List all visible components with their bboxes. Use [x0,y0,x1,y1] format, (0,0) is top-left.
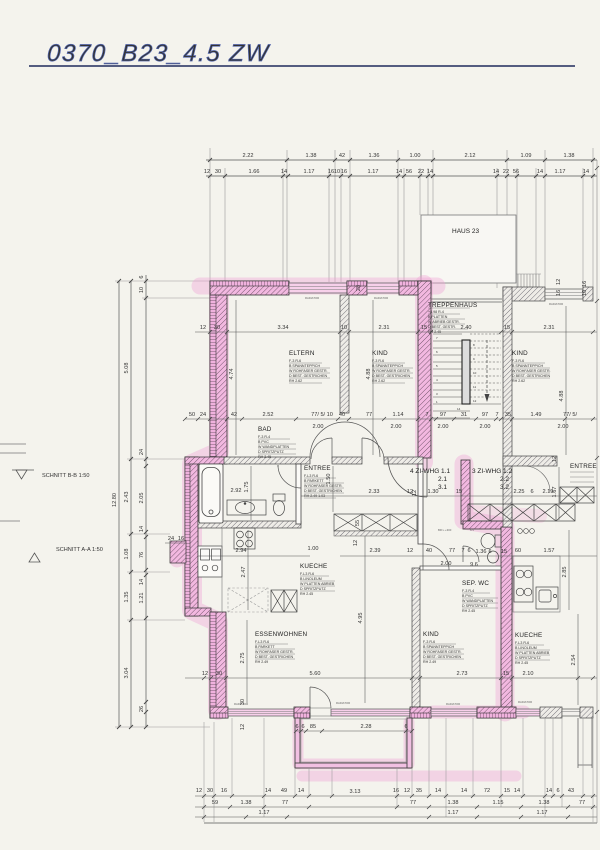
svg-text:4.88: 4.88 [559,391,565,402]
svg-text:RADIATOR: RADIATOR [336,701,350,705]
svg-text:RH 2.45: RH 2.45 [300,592,313,596]
svg-text:1.15: 1.15 [493,800,504,806]
svg-text:ELTERN: ELTERN [289,350,315,357]
svg-text:RADIATOR: RADIATOR [549,302,563,306]
svg-text:9.6: 9.6 [470,562,478,568]
svg-text:2.00: 2.00 [391,424,402,430]
svg-text:W PLATTEN ABRIEB: W PLATTEN ABRIEB [300,582,335,586]
svg-text:4.74: 4.74 [229,369,235,380]
svg-text:12.80: 12.80 [112,493,118,507]
svg-text:6: 6 [467,548,470,554]
svg-text:6: 6 [556,788,559,794]
svg-text:14: 14 [583,169,589,175]
svg-text:14: 14 [546,788,552,794]
svg-text:F-3 R-6: F-3 R-6 [372,359,384,363]
svg-text:7: 7 [495,412,498,418]
svg-text:77: 77 [410,800,416,806]
svg-text:1.17: 1.17 [304,169,315,175]
svg-text:2.00: 2.00 [480,424,491,430]
svg-text:2.92: 2.92 [231,488,242,494]
svg-text:10: 10 [334,169,340,175]
svg-text:F-L3 R-6: F-L3 R-6 [300,572,314,576]
svg-text:6: 6 [301,724,304,730]
svg-text:2.1: 2.1 [438,476,447,483]
svg-text:BR L.+300: BR L.+300 [438,528,452,532]
svg-text:14: 14 [281,169,287,175]
svg-text:2.28: 2.28 [361,724,372,730]
svg-text:16: 16 [178,536,184,542]
svg-text:12: 12 [202,671,208,677]
svg-text:KIND: KIND [512,350,528,357]
svg-text:1.67: 1.67 [552,487,558,498]
svg-text:1.36: 1.36 [369,153,380,159]
svg-text:77: 77 [366,412,372,418]
svg-text:2.12: 2.12 [465,153,476,159]
svg-text:12: 12 [556,279,562,285]
svg-text:B PLATTEN: B PLATTEN [428,315,448,319]
svg-text:RH 2.62: RH 2.62 [372,379,385,383]
svg-text:B LINOLEUM: B LINOLEUM [300,577,322,581]
svg-text:W ROHFASER GESTR.: W ROHFASER GESTR. [512,369,551,373]
svg-text:30: 30 [215,169,221,175]
svg-text:W ROHFASER GESTR.: W ROHFASER GESTR. [372,369,411,373]
svg-text:12: 12 [407,548,413,554]
svg-text:1.38: 1.38 [564,153,575,159]
svg-text:77/ 5/ 10: 77/ 5/ 10 [311,412,333,418]
svg-text:43: 43 [568,788,574,794]
svg-text:12: 12 [353,540,359,546]
svg-text:2.85: 2.85 [562,567,568,578]
svg-text:3 ZI-WHG 1.2: 3 ZI-WHG 1.2 [472,468,512,475]
svg-text:15: 15 [503,671,509,677]
svg-text:W PLATTEN ABRIEB: W PLATTEN ABRIEB [515,651,550,655]
svg-text:RADIATOR: RADIATOR [305,296,319,300]
svg-text:14: 14 [427,169,433,175]
svg-text:1.66: 1.66 [249,169,260,175]
svg-text:15: 15 [504,788,510,794]
svg-text:SEP. WC: SEP. WC [462,580,489,587]
svg-text:50: 50 [189,412,195,418]
svg-text:D SPRITZPUTZ: D SPRITZPUTZ [258,450,285,454]
svg-text:ESSENWOHNEN: ESSENWOHNEN [255,631,307,638]
svg-text:B SPANNTEPPICH: B SPANNTEPPICH [423,645,454,649]
svg-text:56: 56 [513,169,519,175]
svg-text:ENTREE: ENTREE [570,463,597,470]
svg-text:56: 56 [406,169,412,175]
svg-text:2.00: 2.00 [558,424,569,430]
svg-text:D BEST. GESTR.: D BEST. GESTR. [428,325,456,329]
svg-text:1.00: 1.00 [308,546,319,552]
svg-text:14: 14 [396,169,402,175]
svg-text:W ABRIEB GESTR.: W ABRIEB GESTR. [428,320,460,324]
svg-text:49: 49 [281,788,287,794]
svg-text:2.54: 2.54 [571,655,577,666]
svg-text:24: 24 [168,536,174,542]
svg-text:B LINOLEUM: B LINOLEUM [515,646,537,650]
svg-text:14: 14 [265,788,271,794]
svg-text:D BEST. GESTRICHEN: D BEST. GESTRICHEN [512,374,551,378]
svg-text:1.38: 1.38 [448,800,459,806]
svg-text:1.38: 1.38 [306,153,317,159]
svg-text:3.34: 3.34 [278,325,289,331]
svg-text:3.04: 3.04 [124,668,130,679]
svg-text:14: 14 [139,579,145,585]
svg-text:B SPANNTEPPICH: B SPANNTEPPICH [372,364,403,368]
svg-text:+8.98 R-4: +8.98 R-4 [428,310,444,314]
svg-text:W WANDPLATTEN: W WANDPLATTEN [462,599,494,603]
svg-text:KIND: KIND [372,350,388,357]
svg-text:1.75: 1.75 [244,482,250,493]
svg-text:5.60: 5.60 [310,671,321,677]
svg-text:5.08: 5.08 [124,363,130,374]
svg-text:72: 72 [484,788,490,794]
svg-text:D BEST. GESTRICHEN: D BEST. GESTRICHEN [423,655,462,659]
svg-text:1.00: 1.00 [410,153,421,159]
svg-text:35: 35 [416,788,422,794]
svg-text:6.5: 6.5 [470,528,474,532]
svg-text:RH 2.49: RH 2.49 [255,660,268,664]
svg-text:RH 2.45: RH 2.45 [515,661,528,665]
svg-text:2.31: 2.31 [544,325,555,331]
svg-text:B PARKETT: B PARKETT [255,645,276,649]
svg-text:F-L3 R-6: F-L3 R-6 [304,474,318,478]
svg-text:31: 31 [461,412,467,418]
svg-text:12: 12 [240,724,246,730]
svg-text:77: 77 [282,800,288,806]
svg-text:1.17: 1.17 [259,810,270,816]
svg-text:40: 40 [426,548,432,554]
svg-text:12: 12 [404,788,410,794]
svg-text:KIND: KIND [423,631,439,638]
svg-text:2.00: 2.00 [441,561,452,567]
svg-text:42: 42 [339,153,345,159]
svg-text:2.94: 2.94 [236,548,247,554]
svg-text:77/ 5/: 77/ 5/ [563,412,577,418]
svg-text:F-3 R-4: F-3 R-4 [462,589,474,593]
svg-text:2.00: 2.00 [313,424,324,430]
svg-text:4 ZI-WHG 1.1: 4 ZI-WHG 1.1 [410,468,450,475]
svg-text:6: 6 [404,724,407,730]
svg-text:B PVC: B PVC [462,594,473,598]
svg-text:2.47: 2.47 [241,567,247,578]
svg-text:14: 14 [298,788,304,794]
svg-text:RADIATOR: RADIATOR [374,296,388,300]
svg-text:77: 77 [449,548,455,554]
svg-text:RH 2.45: RH 2.45 [462,609,475,613]
svg-text:2.43: 2.43 [124,492,130,503]
svg-text:14: 14 [537,169,543,175]
svg-text:3.13: 3.13 [350,789,361,795]
svg-text:15: 15 [421,325,427,331]
svg-text:24: 24 [139,449,145,455]
svg-text:14: 14 [435,788,441,794]
svg-text:RH 2.45: RH 2.45 [258,455,271,459]
svg-text:55: 55 [355,520,361,526]
svg-text:SCHNITT B-B 1:50: SCHNITT B-B 1:50 [42,473,89,479]
svg-text:D SPRITZPUTZ: D SPRITZPUTZ [515,656,542,660]
svg-text:2.22: 2.22 [243,153,254,159]
svg-text:16: 16 [582,281,588,287]
svg-text:2.39: 2.39 [370,548,381,554]
svg-text:1.38: 1.38 [241,800,252,806]
svg-text:D SPRITZPUTZ: D SPRITZPUTZ [462,604,489,608]
svg-text:F-L3 R-6: F-L3 R-6 [255,640,269,644]
svg-text:RH 2.62: RH 2.62 [512,379,525,383]
svg-text:28: 28 [356,285,362,291]
svg-text:97: 97 [482,412,488,418]
svg-text:12: 12 [552,456,558,462]
svg-text:35: 35 [505,412,511,418]
svg-text:1.35: 1.35 [124,592,130,603]
svg-text:14: 14 [461,788,467,794]
svg-text:26: 26 [139,706,145,712]
svg-text:1.21: 1.21 [139,593,145,604]
svg-text:40: 40 [339,412,345,418]
svg-text:ENTREE: ENTREE [304,465,331,472]
svg-text:1.17: 1.17 [368,169,379,175]
svg-text:15: 15 [501,549,507,555]
svg-text:14: 14 [514,788,520,794]
svg-text:HAUS 23: HAUS 23 [452,228,479,235]
svg-text:2.25: 2.25 [514,489,525,495]
svg-text:2.31: 2.31 [379,325,390,331]
svg-text:4.95: 4.95 [358,613,364,624]
svg-text:D BEST. GESTRICHEN: D BEST. GESTRICHEN [255,655,294,659]
svg-text:B PVC: B PVC [258,440,269,444]
svg-text:12: 12 [473,399,477,403]
svg-text:1.09: 1.09 [521,153,532,159]
svg-text:BAD: BAD [258,426,272,433]
svg-text:85: 85 [310,724,316,730]
svg-text:2.10: 2.10 [523,671,534,677]
svg-text:22: 22 [418,169,424,175]
svg-text:15: 15 [456,489,462,495]
svg-text:10: 10 [582,290,588,296]
svg-text:F-3 R-6: F-3 R-6 [289,359,301,363]
svg-text:12: 12 [204,169,210,175]
svg-text:30: 30 [240,699,246,705]
svg-text:RH 2.62: RH 2.62 [289,379,302,383]
svg-text:6: 6 [139,275,145,278]
svg-text:W ROHFASER GESTR.: W ROHFASER GESTR. [304,484,343,488]
svg-text:1.57: 1.57 [544,548,555,554]
svg-text:1.08: 1.08 [124,549,130,560]
svg-text:60: 60 [515,548,521,554]
svg-text:14: 14 [139,526,145,532]
svg-text:0370_B23_4.5 ZW: 0370_B23_4.5 ZW [46,40,271,67]
svg-text:B SPANNTEPPICH: B SPANNTEPPICH [289,364,320,368]
svg-text:24: 24 [200,412,206,418]
svg-text:16: 16 [221,788,227,794]
svg-text:10: 10 [139,287,145,293]
svg-text:10: 10 [341,325,347,331]
svg-text:W ROHFASER GESTR.: W ROHFASER GESTR. [423,650,462,654]
svg-text:22: 22 [503,169,509,175]
svg-text:59: 59 [212,800,218,806]
svg-text:D SPRITZPUTZ: D SPRITZPUTZ [300,587,327,591]
svg-text:30: 30 [214,325,220,331]
svg-text:16: 16 [341,169,347,175]
svg-text:2.75: 2.75 [240,653,246,664]
svg-text:2.00: 2.00 [438,424,449,430]
svg-text:97: 97 [440,412,446,418]
svg-text:6: 6 [295,724,298,730]
svg-text:3.1: 3.1 [438,484,447,491]
svg-text:15: 15 [504,325,510,331]
svg-text:1.50: 1.50 [326,474,332,485]
svg-text:30: 30 [216,671,222,677]
svg-text:1.14: 1.14 [393,412,404,418]
svg-text:2.52: 2.52 [263,412,274,418]
svg-text:2.05: 2.05 [139,493,145,504]
svg-text:1.17: 1.17 [537,810,548,816]
svg-text:RADIATOR: RADIATOR [446,702,460,706]
svg-text:6: 6 [530,489,533,495]
svg-text:1.17: 1.17 [448,810,459,816]
svg-text:F-L3 R-6: F-L3 R-6 [515,641,529,645]
svg-text:B PARKETT: B PARKETT [304,479,325,483]
svg-text:B SPANNTEPPICH: B SPANNTEPPICH [512,364,543,368]
svg-text:7: 7 [461,548,464,554]
svg-text:KUECHE: KUECHE [515,632,542,639]
svg-text:W ROHFASER GESTR.: W ROHFASER GESTR. [255,650,294,654]
svg-text:76: 76 [139,552,145,558]
svg-text:SCHNITT A-A 1:50: SCHNITT A-A 1:50 [56,547,103,553]
svg-text:F-3 R-6: F-3 R-6 [512,359,524,363]
svg-text:2.73: 2.73 [457,671,468,677]
svg-text:2.40: 2.40 [461,325,472,331]
svg-text:1.36: 1.36 [476,549,487,555]
svg-text:12: 12 [412,490,418,496]
svg-text:F-3 R-4: F-3 R-4 [258,435,270,439]
svg-text:KUECHE: KUECHE [300,563,327,570]
svg-text:W ROHFASER GESTR.: W ROHFASER GESTR. [289,369,328,373]
svg-text:11: 11 [473,385,476,389]
svg-text:W WANDPLATTEN: W WANDPLATTEN [258,445,290,449]
svg-text:77: 77 [579,800,585,806]
svg-text:7: 7 [425,412,428,418]
svg-text:1.49: 1.49 [531,412,542,418]
svg-text:2.2: 2.2 [500,476,509,483]
svg-text:12: 12 [196,788,202,794]
svg-text:1.30: 1.30 [428,489,439,495]
svg-text:30: 30 [207,788,213,794]
svg-text:1.17: 1.17 [555,169,566,175]
svg-text:D BEST. GESTRICHEN: D BEST. GESTRICHEN [289,374,328,378]
svg-text:F-3 R-6: F-3 R-6 [423,640,435,644]
svg-text:D BEST. GESTRICHEN: D BEST. GESTRICHEN [372,374,411,378]
svg-text:RH 2.49: RH 2.49 [423,660,436,664]
svg-text:3.2: 3.2 [500,484,509,491]
svg-text:D BEST. GESTRICHEN: D BEST. GESTRICHEN [304,489,343,493]
svg-text:RADIATOR: RADIATOR [518,700,532,704]
svg-text:6: 6 [488,549,491,555]
svg-text:1.38: 1.38 [539,800,550,806]
svg-text:4.88: 4.88 [366,369,372,380]
svg-text:16: 16 [393,788,399,794]
svg-text:2.33: 2.33 [369,489,380,495]
svg-text:16: 16 [556,290,562,296]
svg-text:14: 14 [457,407,461,411]
svg-text:14: 14 [493,169,499,175]
svg-text:10: 10 [473,371,477,375]
svg-text:12: 12 [200,325,206,331]
